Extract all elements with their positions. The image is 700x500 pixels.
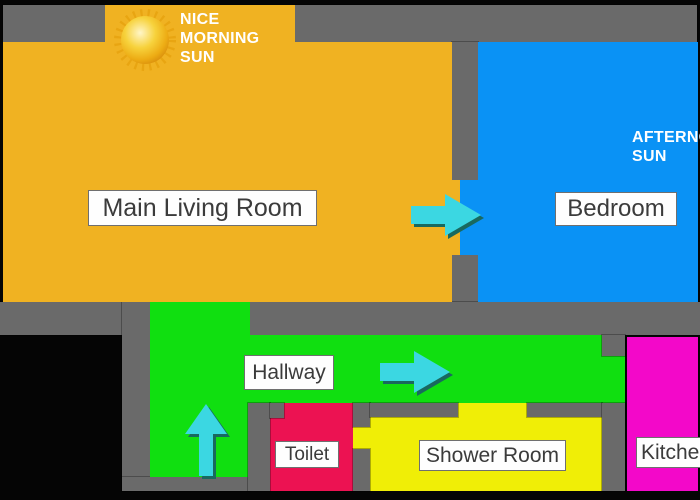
wall-toilet-door-stub [270,403,284,418]
right-arrow-hallway-icon [378,349,454,397]
living-room-label-text: Main Living Room [102,196,302,221]
living-room-label: Main Living Room [88,190,317,226]
up-arrow-hallway-icon [183,402,231,480]
afternoon-sun-annotation: AFTERNOON SUN [632,128,700,166]
sun-icon [112,6,178,74]
hallway-label: Hallway [244,355,334,390]
wall-toilet-shower-upper [353,403,370,427]
wall-hall-arm-left [122,302,150,491]
wall-shower-kitchen [602,403,625,491]
morning-sun-annotation: NICE MORNING SUN [180,10,259,67]
hallway-label-text: Hallway [252,362,326,383]
room-main-living-room [3,42,452,302]
wall-toilet-shower-lower [353,449,370,491]
bedroom-label: Bedroom [555,192,677,226]
wall-shower-top-left [370,403,458,417]
shower-room-label: Shower Room [419,440,566,471]
wall-living-bedroom-upper [452,42,478,180]
toilet-label-text: Toilet [285,445,329,464]
wall-top-right [295,5,697,42]
right-arrow-living-to-bedroom-icon [409,192,485,240]
kitchen-label: Kitchen [636,437,700,468]
wall-mid-right [250,302,700,335]
wall-living-bedroom-lower [452,255,478,302]
bedroom-label-text: Bedroom [567,197,664,221]
wall-shower-top-right [527,403,602,417]
room-bedroom [478,42,698,302]
floor-plan: NICE MORNING SUN AFTERNOON SUN Main Livi… [0,0,700,500]
wall-toilet-left [248,403,270,491]
kitchen-label-text: Kitchen [641,442,700,463]
toilet-label: Toilet [275,441,339,468]
shower-room-label-text: Shower Room [426,445,559,466]
wall-top-left [3,5,105,42]
wall-hallway-kitchen-stub [602,335,625,356]
